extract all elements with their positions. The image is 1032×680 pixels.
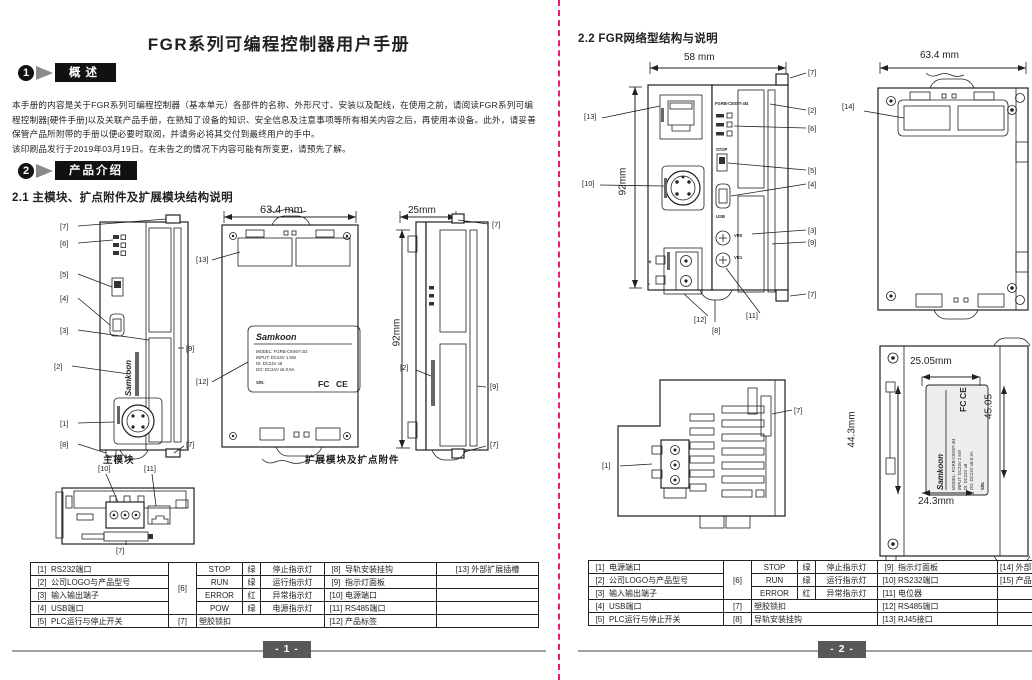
label-line: DI: DC24V x8	[256, 361, 283, 366]
model-text-placeholder	[135, 352, 139, 396]
ce-mark-icon: CE	[958, 387, 968, 399]
dim-92mm: 92mm	[618, 161, 629, 203]
dim-58mm: 58 mm	[684, 52, 715, 63]
page-number-1: - 1 -	[263, 641, 311, 658]
section-1-title: 概述	[55, 63, 116, 82]
dim-24-3mm: 24.3mm	[918, 496, 954, 507]
callout-1: [1]	[60, 419, 68, 428]
section-2-number: 2	[18, 163, 34, 179]
callout-4: [4]	[808, 180, 816, 189]
table-cell: [4]USB端口	[589, 600, 724, 613]
module-bottom-view	[56, 474, 194, 545]
fcc-mark-icon: FC	[318, 379, 329, 389]
callout-9: [9]	[186, 344, 194, 353]
callout-2: [2]	[54, 362, 62, 371]
callout-14: [14]	[842, 102, 855, 111]
table-cell	[437, 589, 539, 602]
table-cell: [8]	[724, 613, 752, 626]
callout-12: [12]	[196, 377, 209, 386]
callout-7: [7]	[794, 406, 802, 415]
table-cell: [5]PLC运行与停止开关	[31, 615, 169, 628]
parts-table-page2: [1]电源端口 [6] STOP 绿 停止指示灯 [9]指示灯面板 [14] 外…	[588, 560, 1032, 626]
callout-4: [4]	[60, 294, 68, 303]
parts-table-page1: [1]RS232端口 [6] STOP 绿 停止指示灯 [8]导轨安装挂钩 [1…	[30, 562, 539, 628]
usb-label: USB	[716, 214, 725, 219]
table-cell: 电源指示灯	[261, 602, 325, 615]
label-line: INPUT: DC24V 2.5W	[957, 449, 962, 490]
callout-6: [6]	[808, 124, 816, 133]
table-cell: 异常指示灯	[261, 589, 325, 602]
table-cell: [14] 外部	[998, 561, 1032, 574]
table-cell: RUN	[752, 574, 798, 587]
section-2-badge: 2 产品介绍	[18, 162, 137, 179]
dim-63-4mm: 63.4 mm	[920, 50, 959, 61]
table-cell	[437, 615, 539, 628]
callout-8: [8]	[60, 440, 68, 449]
table-cell	[437, 602, 539, 615]
callout-6: [6]	[60, 239, 68, 248]
dim-63-4mm: 63.4 mm	[260, 204, 303, 216]
manual-spread: { "callouts":{"c1":"[1]","c2":"[2]","c3"…	[0, 0, 1032, 680]
table-cell	[998, 587, 1032, 600]
callout-7: [7]	[60, 222, 68, 231]
table-cell: [10]RS232端口	[878, 574, 998, 587]
table-cell: [11]电位器	[878, 587, 998, 600]
table-cell: ERROR	[752, 587, 798, 600]
section-1-badge: 1 概述	[18, 64, 116, 81]
callout-3: [3]	[60, 326, 68, 335]
badge-wedge-icon	[36, 66, 53, 80]
callout-2: [2]	[400, 363, 408, 372]
section-2-title: 产品介绍	[55, 161, 137, 180]
table-cell: 运行指示灯	[261, 576, 325, 589]
network-module-front-view: + - FGRB-C8X8T-4I4 STOP USB VR0	[600, 62, 806, 322]
module-back-view: Samkoon MODEL: FGRB-C8X6T-2I2 INPUT: DC2…	[212, 209, 360, 464]
callout-12: [12]	[694, 315, 707, 324]
main-module-front-view: Samkoon	[72, 215, 188, 459]
network-module-cutaway-view	[618, 380, 792, 528]
intro-line: 该印刷品发行于2019年03月19日。在未告之的情况下内容可能有所变更，请预先了…	[12, 142, 536, 157]
table-cell: [2]公司LOGO与产品型号	[31, 576, 169, 589]
table-cell: [10]电源端口	[325, 589, 437, 602]
label-brand: Samkoon	[936, 454, 945, 490]
table-cell: POW	[197, 602, 243, 615]
label-line: DI: DC24V x8	[963, 463, 968, 490]
table-cell: 导轨安装挂钩	[752, 613, 878, 626]
table-cell: [13]RJ45接口	[878, 613, 998, 626]
callout-11: [11]	[746, 311, 758, 320]
table-cell: [1]电源端口	[589, 561, 724, 574]
table-cell: [7]	[169, 615, 197, 628]
vr0-label: VR0	[734, 233, 743, 238]
intro-line: 本手册的内容是关于FGR系列可编程控制器（基本单元）各部件的名称、外形尺寸、安装…	[12, 98, 536, 113]
callout-13: [13]	[196, 255, 209, 264]
callout-7: [7]	[490, 440, 498, 449]
table-cell	[998, 600, 1032, 613]
intro-line: 程控制器[硬件手册]以及关联产品手册，在熟知了设备的知识、安全信息及注意事项等所…	[12, 113, 536, 128]
table-cell: 异常指示灯	[816, 587, 878, 600]
callout-7: [7]	[116, 546, 124, 555]
ce-mark-icon: CE	[336, 379, 348, 389]
table-cell: [6]	[724, 561, 752, 600]
table-cell: [9]指示灯面板	[325, 576, 437, 589]
intro-line: 保管产品所附带的手册以便必要时取阅，并请务必将其交付到最终用户的手中。	[12, 127, 536, 142]
table-cell: [6]	[169, 563, 197, 615]
table-cell: [9]指示灯面板	[878, 561, 998, 574]
callout-3: [3]	[808, 226, 816, 235]
table-cell: [8]导轨安装挂钩	[325, 563, 437, 576]
label-sn: S/N:	[980, 481, 985, 490]
intro-paragraph: 本手册的内容是关于FGR系列可编程控制器（基本单元）各部件的名称、外形尺寸、安装…	[12, 98, 536, 156]
label-brand: Samkoon	[256, 332, 297, 342]
dim-25mm: 25mm	[408, 205, 436, 216]
table-cell: ERROR	[197, 589, 243, 602]
table-cell: [15] 产品	[998, 574, 1032, 587]
label-line: INPUT: DC24V 1.5W	[256, 355, 297, 360]
table-cell: [1]RS232端口	[31, 563, 169, 576]
network-module-back-view	[864, 62, 1028, 319]
table-cell: RUN	[197, 576, 243, 589]
section-1-number: 1	[18, 65, 34, 81]
callout-2: [2]	[808, 106, 816, 115]
table-cell: 绿	[798, 561, 816, 574]
table-cell	[437, 576, 539, 589]
callout-5: [5]	[808, 166, 816, 175]
callout-13: [13]	[584, 112, 597, 121]
brand-vertical-text: Samkoon	[124, 360, 133, 396]
table-cell: 绿	[243, 576, 261, 589]
dim-25-05mm: 25.05mm	[910, 356, 952, 367]
stop-label: STOP	[716, 147, 728, 152]
callout-7: [7]	[492, 220, 500, 229]
table-cell: [13] 外部扩展插槽	[437, 563, 539, 576]
table-cell: [3]输入输出端子	[589, 587, 724, 600]
label-line: DO: DC24V x8 0.3A	[969, 451, 974, 490]
model-text: FGRB-C8X8T-4I4	[715, 101, 749, 106]
caption-main-module: 主模块	[103, 452, 135, 466]
dim-44-3mm: 44.3mm	[847, 408, 858, 452]
callout-7: [7]	[808, 290, 816, 299]
table-cell: 运行指示灯	[816, 574, 878, 587]
table-cell: [3]输入输出端子	[31, 589, 169, 602]
callout-7: [7]	[808, 68, 816, 77]
left-page-drawings: Samkoon	[0, 200, 558, 560]
expansion-module-side-view	[396, 211, 488, 460]
table-cell: [11]RS485端口	[325, 602, 437, 615]
table-cell: 红	[243, 589, 261, 602]
table-cell: [2]公司LOGO与产品型号	[589, 574, 724, 587]
label-line: MODEL: FGRB-C8X8T-4I4	[951, 438, 956, 490]
table-cell	[998, 613, 1032, 626]
network-module-side-view: Samkoon MODEL: FGRB-C8X8T-4I4 INPUT: DC2…	[880, 338, 1030, 560]
callout-9: [9]	[808, 238, 816, 247]
right-page-drawings: + - FGRB-C8X8T-4I4 STOP USB VR0	[560, 46, 1032, 560]
table-cell: 绿	[243, 563, 261, 576]
table-cell: STOP	[197, 563, 243, 576]
badge-wedge-icon	[36, 164, 53, 178]
minus-mark: -	[648, 281, 650, 288]
table-cell: 停止指示灯	[816, 561, 878, 574]
table-cell: 红	[798, 587, 816, 600]
callout-7: [7]	[186, 440, 194, 449]
callout-11: [11]	[144, 464, 156, 473]
label-line: MODEL: FGRB-C8X6T-2I2	[256, 349, 308, 354]
dim-92mm: 92mm	[392, 313, 403, 353]
table-cell: STOP	[752, 561, 798, 574]
table-cell: 绿	[798, 574, 816, 587]
callout-5: [5]	[60, 270, 68, 279]
callout-10: [10]	[582, 179, 595, 188]
table-cell: [7]	[724, 600, 752, 613]
page-number-2: - 2 -	[818, 641, 866, 658]
dim-45-05: 45.05	[984, 387, 995, 427]
callout-9: [9]	[490, 382, 498, 391]
heading-2-2: 2.2 FGR网络型结构与说明	[578, 30, 718, 46]
footer-rule	[578, 650, 1032, 652]
label-sn: S/N:	[256, 380, 265, 385]
plus-mark: +	[648, 259, 652, 266]
callout-1: [1]	[602, 461, 610, 470]
label-line: DO: DC24V x6 0.5A	[256, 367, 295, 372]
table-cell: 塑胶锁扣	[752, 600, 878, 613]
table-cell: [12]产品标签	[325, 615, 437, 628]
table-cell: 绿	[243, 602, 261, 615]
page-title: FGR系列可编程控制器用户手册	[0, 30, 558, 55]
table-cell: 停止指示灯	[261, 563, 325, 576]
table-cell: [5]PLC运行与停止开关	[589, 613, 724, 626]
model-text-placeholder	[431, 360, 435, 406]
callout-8: [8]	[712, 326, 720, 335]
caption-expansion: 扩展模块及扩点附件	[305, 452, 400, 466]
table-cell: [12]RS485端口	[878, 600, 998, 613]
table-cell: [4]USB端口	[31, 602, 169, 615]
table-cell: 塑胶锁扣	[197, 615, 325, 628]
vr1-label: VR1	[734, 255, 743, 260]
fcc-mark-icon: FC	[958, 401, 968, 412]
